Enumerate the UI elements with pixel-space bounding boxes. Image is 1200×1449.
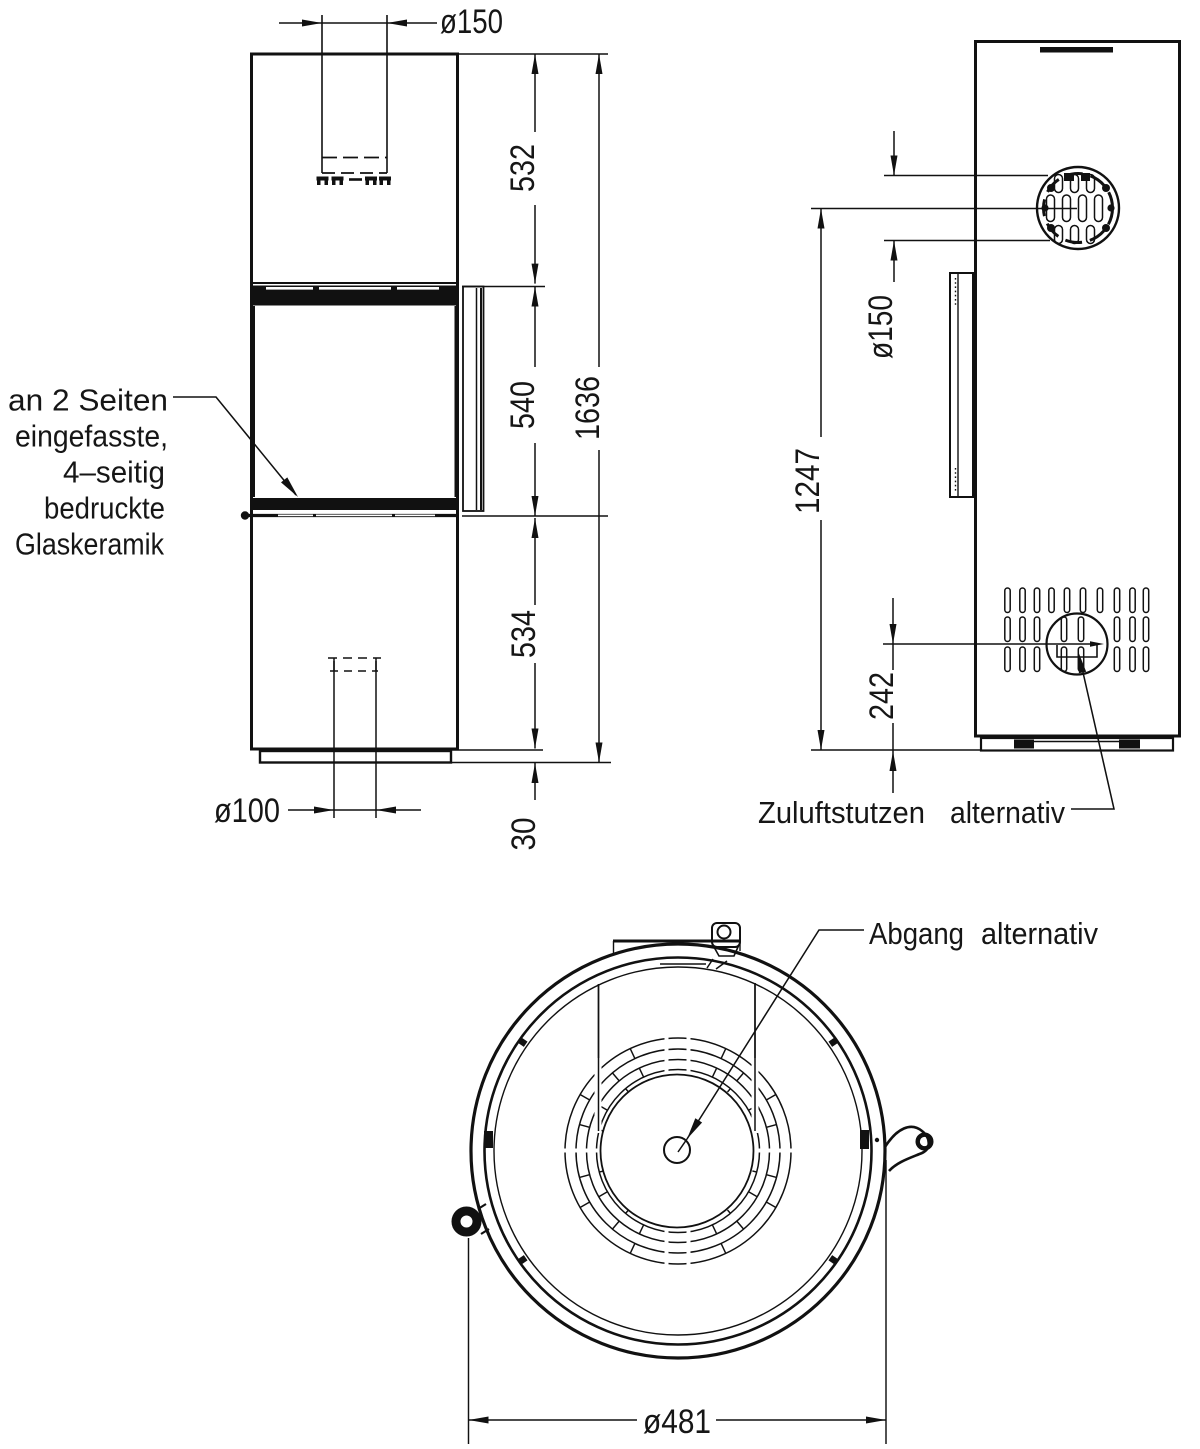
svg-text:alternativ: alternativ [981, 916, 1098, 951]
svg-text:ø150: ø150 [440, 3, 503, 41]
svg-text:532: 532 [504, 144, 542, 192]
svg-text:540: 540 [504, 381, 542, 429]
svg-text:1636: 1636 [569, 376, 607, 440]
svg-text:eingefasste,: eingefasste, [15, 419, 168, 454]
svg-text:an 2 Seiten: an 2 Seiten [8, 383, 168, 418]
svg-text:bedruckte: bedruckte [44, 491, 165, 526]
svg-text:Zuluftstutzen: Zuluftstutzen [758, 795, 925, 830]
svg-text:30: 30 [505, 818, 543, 851]
svg-text:ø100: ø100 [214, 792, 280, 830]
svg-text:ø481: ø481 [643, 1403, 711, 1441]
svg-text:alternativ: alternativ [950, 795, 1065, 830]
svg-text:242: 242 [863, 672, 901, 720]
svg-text:Abgang: Abgang [869, 916, 964, 951]
svg-text:534: 534 [505, 610, 543, 658]
svg-text:Glaskeramik: Glaskeramik [15, 527, 164, 562]
svg-text:4–seitig: 4–seitig [63, 455, 165, 490]
svg-text:1247: 1247 [789, 448, 827, 514]
svg-text:ø150: ø150 [862, 295, 900, 359]
